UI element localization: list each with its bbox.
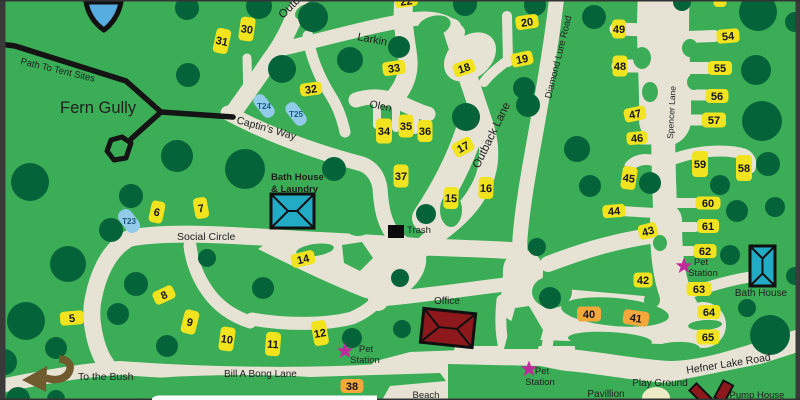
svg-text:47: 47 [628, 108, 642, 122]
svg-text:5: 5 [69, 313, 76, 325]
svg-text:34: 34 [378, 126, 391, 138]
svg-text:49: 49 [613, 24, 625, 36]
svg-text:Pet: Pet [359, 344, 374, 355]
svg-text:Pet: Pet [535, 366, 550, 377]
svg-text:44: 44 [607, 205, 621, 218]
svg-text:T23: T23 [122, 217, 136, 226]
svg-text:31: 31 [215, 35, 229, 49]
svg-text:Station: Station [688, 268, 718, 279]
svg-text:59: 59 [694, 159, 706, 171]
svg-text:63: 63 [693, 284, 705, 296]
svg-text:37: 37 [395, 171, 407, 183]
svg-text:Bill A Bong Lane: Bill A Bong Lane [224, 369, 297, 380]
svg-text:41: 41 [629, 312, 643, 326]
svg-text:Station: Station [525, 377, 555, 388]
svg-text:15: 15 [445, 193, 458, 205]
svg-text:58: 58 [738, 163, 750, 175]
svg-text:& Laundry: & Laundry [271, 184, 319, 195]
svg-text:57: 57 [708, 115, 720, 127]
svg-text:Fern Gully: Fern Gully [60, 99, 137, 117]
svg-text:56: 56 [711, 91, 723, 103]
svg-text:10: 10 [220, 333, 234, 347]
svg-text:60: 60 [702, 198, 714, 210]
svg-text:20: 20 [520, 16, 534, 30]
svg-text:55: 55 [714, 63, 726, 75]
svg-text:Play Ground: Play Ground [632, 378, 688, 389]
svg-text:32: 32 [304, 83, 318, 97]
svg-text:Trash: Trash [407, 225, 431, 236]
svg-text:30: 30 [240, 23, 254, 37]
svg-text:42: 42 [637, 275, 649, 287]
svg-text:To the Bush: To the Bush [78, 371, 134, 383]
svg-text:T25: T25 [289, 110, 303, 119]
svg-text:12: 12 [313, 327, 327, 341]
svg-text:46: 46 [630, 132, 643, 145]
svg-text:65: 65 [702, 332, 714, 344]
svg-text:35: 35 [400, 121, 412, 133]
svg-text:Bath House: Bath House [735, 288, 788, 299]
svg-text:64: 64 [703, 307, 716, 319]
svg-text:Pavillion: Pavillion [587, 389, 624, 400]
svg-text:11: 11 [267, 339, 279, 352]
svg-text:54: 54 [721, 30, 735, 43]
svg-text:Social Circle: Social Circle [177, 231, 236, 243]
svg-text:40: 40 [583, 309, 595, 321]
svg-text:19: 19 [515, 53, 529, 67]
svg-text:Office: Office [434, 296, 460, 307]
svg-text:33: 33 [387, 62, 401, 76]
svg-text:Bath House: Bath House [271, 172, 324, 183]
svg-text:Station: Station [350, 355, 380, 366]
svg-text:61: 61 [702, 221, 714, 233]
svg-text:T24: T24 [257, 102, 271, 111]
svg-text:Pet: Pet [694, 257, 709, 268]
svg-text:45: 45 [622, 172, 636, 186]
svg-text:38: 38 [346, 381, 358, 393]
svg-text:48: 48 [614, 61, 626, 73]
svg-text:16: 16 [480, 183, 493, 195]
svg-text:36: 36 [419, 126, 431, 138]
